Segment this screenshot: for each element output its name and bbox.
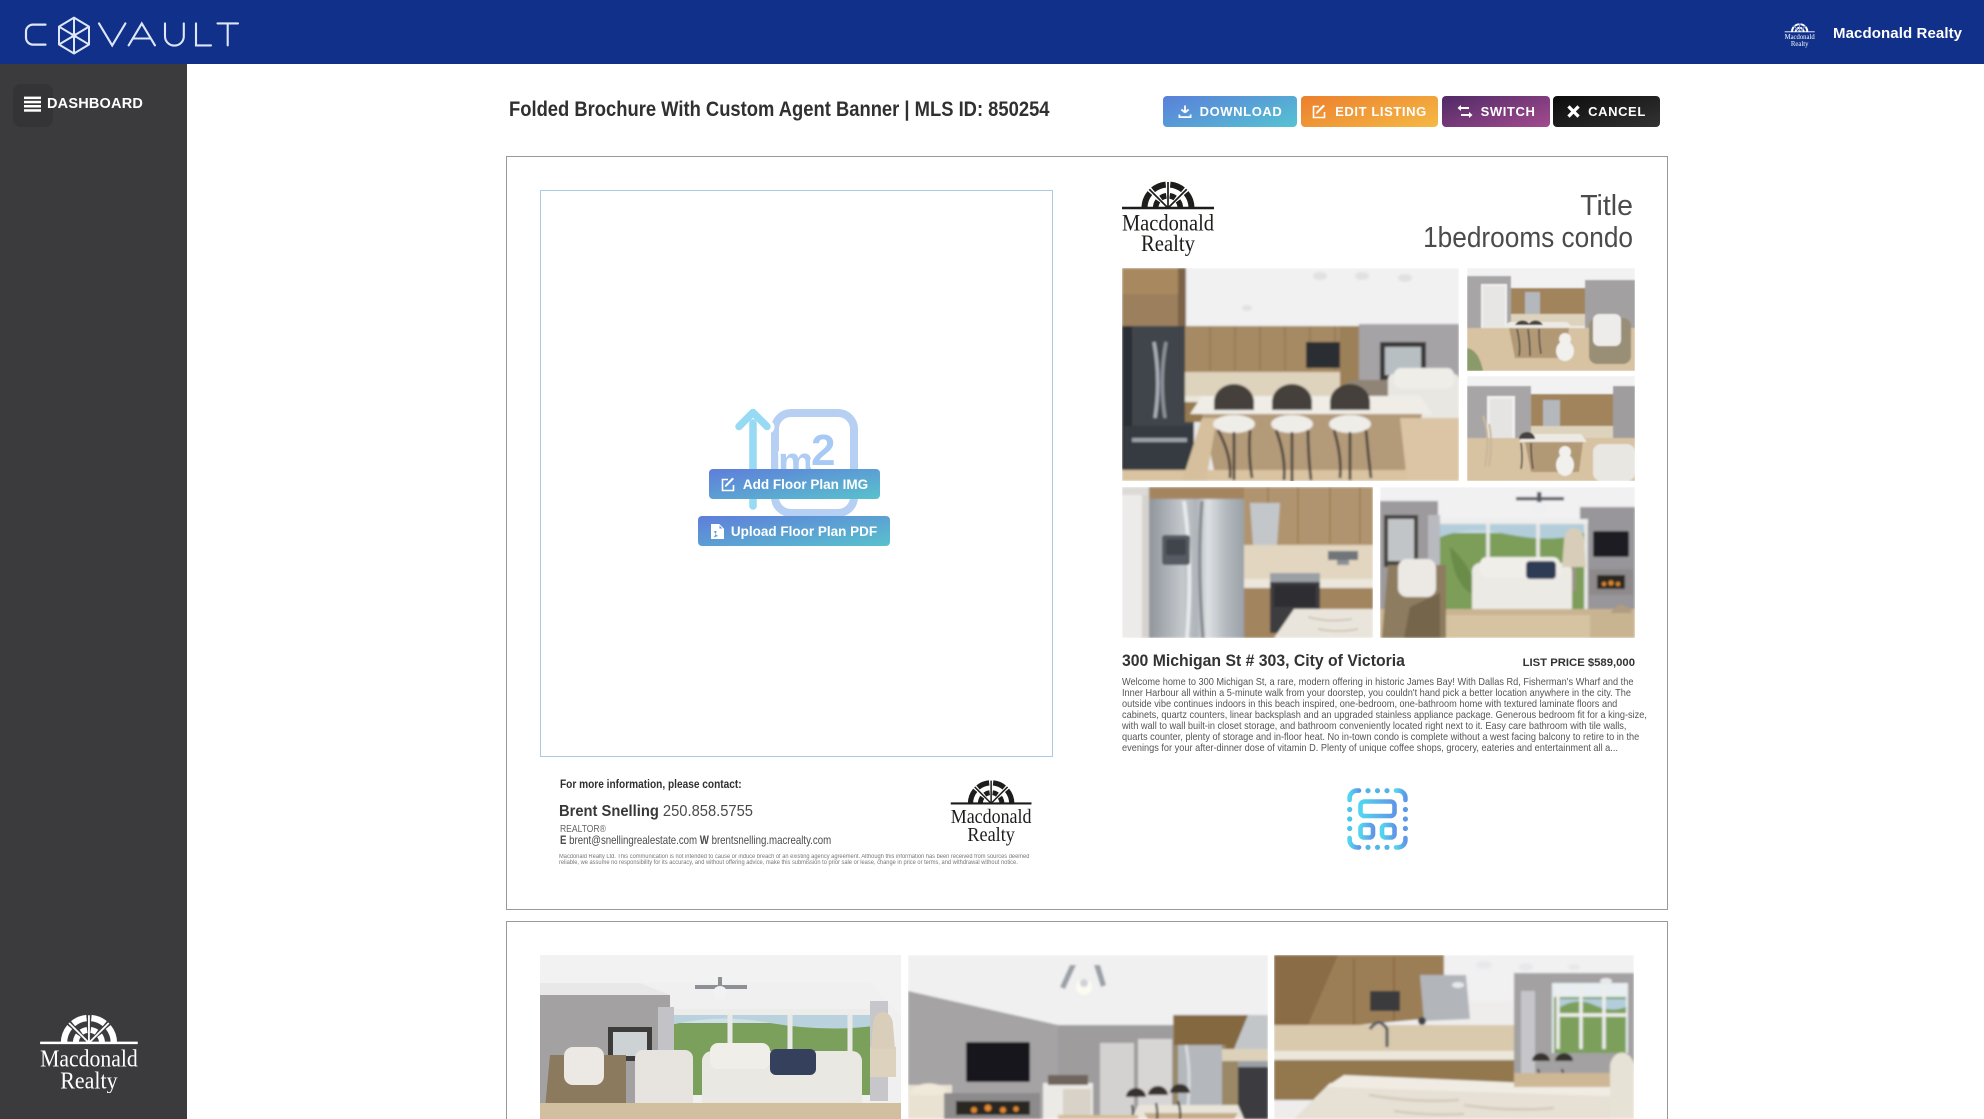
svg-text:2: 2 <box>811 426 835 475</box>
